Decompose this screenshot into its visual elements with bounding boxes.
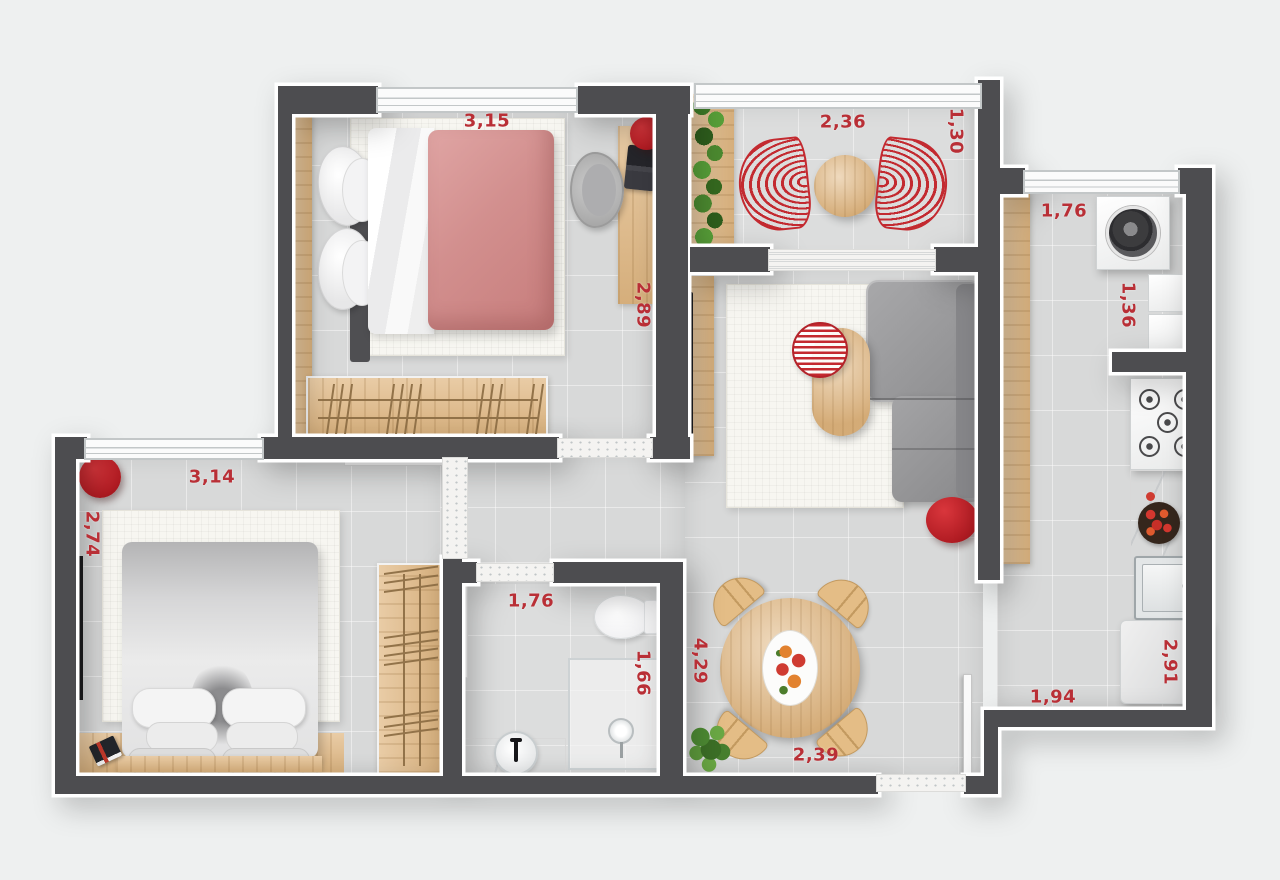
dim-dining-width: 2,39 [793,745,839,766]
dim-bathroom-width: 1,76 [508,591,554,612]
dim-balcony-width: 2,36 [820,112,866,133]
dim-living-depth: 4,29 [690,638,711,684]
dim-laundry-width: 1,76 [1041,201,1087,222]
dim-bathroom-depth: 1,66 [633,650,654,696]
dim-bedroom1-depth: 2,89 [633,282,654,328]
dim-laundry-depth: 1,36 [1118,282,1139,328]
floor-plan: 3,15 2,89 2,36 1,30 1,76 1,36 2,91 1,94 … [0,0,1280,880]
dim-bedroom2-depth: 2,74 [82,511,103,557]
dim-kitchen-depth: 2,91 [1160,639,1181,685]
dim-kitchen-width: 1,94 [1030,687,1076,708]
dim-bedroom1-width: 3,15 [464,111,510,132]
dim-balcony-depth: 1,30 [946,108,967,154]
dim-bedroom2-width: 3,14 [189,467,235,488]
labels-layer: 3,15 2,89 2,36 1,30 1,76 1,36 2,91 1,94 … [0,0,1280,880]
